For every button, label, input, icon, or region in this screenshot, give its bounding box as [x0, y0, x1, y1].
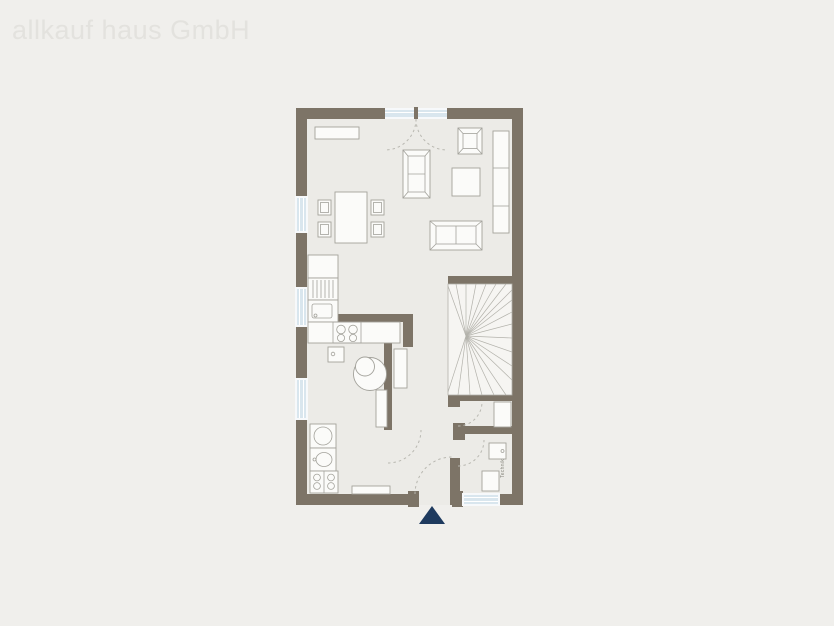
staircase: [448, 284, 512, 395]
chair-icon: [371, 222, 384, 237]
dining-table: [335, 192, 367, 243]
window-icon: [295, 196, 308, 233]
toilet-icon: [310, 448, 336, 471]
kitchen-tall-cabinet: [308, 255, 338, 278]
window-icon: [462, 493, 500, 506]
chair-icon: [318, 222, 331, 237]
window-icon: [295, 378, 308, 420]
entrance-left-jamb: [408, 491, 419, 507]
washbasin-icon: [310, 424, 336, 448]
armchair: [458, 128, 482, 154]
understair-storage: [494, 402, 511, 427]
washer-dryer-icon: [310, 471, 338, 493]
radiator-icon: [352, 486, 390, 494]
sofa-vertical: [403, 150, 430, 198]
chair-icon: [318, 200, 331, 215]
shower-icon: [354, 357, 387, 391]
technik-room-label: Technik: [500, 459, 506, 478]
side-table-icon: [328, 347, 344, 362]
storage-cupboard: [494, 402, 511, 427]
sofa-horizontal: [430, 221, 482, 250]
washbasin-icon: [489, 443, 506, 459]
bath-cabinet: [376, 390, 387, 427]
window-icon: [295, 287, 308, 327]
wall-unit: [493, 131, 509, 233]
windows-left: [295, 196, 308, 420]
entrance-arrow-icon: [419, 506, 445, 524]
hallway: [394, 349, 407, 388]
sink-icon: [308, 300, 338, 322]
hall-radiator-icon: [394, 349, 407, 388]
coffee-table: [452, 168, 480, 196]
sideboard: [315, 127, 359, 139]
dishwasher-icon: [308, 278, 338, 300]
technik-fixture: [482, 471, 499, 491]
floor-plan: Technik: [0, 0, 834, 626]
chair-icon: [371, 200, 384, 215]
